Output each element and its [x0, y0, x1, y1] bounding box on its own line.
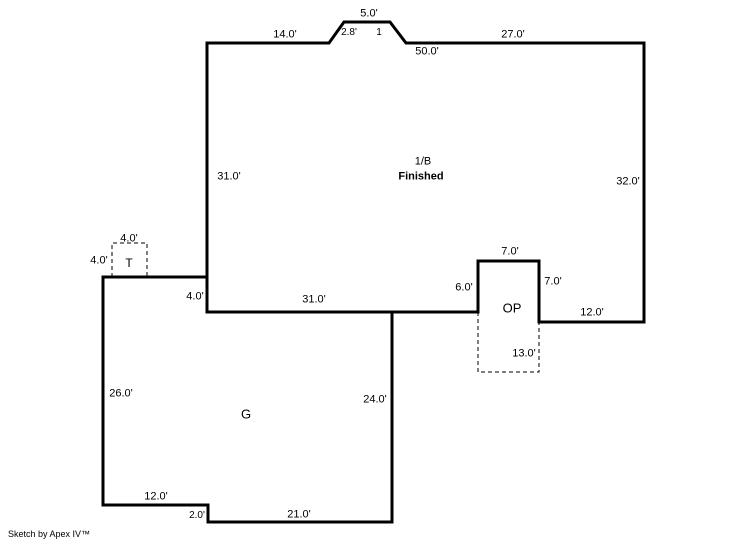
dim-main-bottom-right: 12.0'	[580, 308, 604, 319]
area-label-stoop: T	[125, 257, 132, 269]
area-label-main-floor-status: Finished	[398, 172, 443, 183]
area-label-porch: OP	[503, 302, 522, 315]
dim-garage-left: 26.0'	[109, 389, 133, 400]
dim-stoop-top: 4.0'	[120, 234, 137, 245]
dim-main-top-left: 14.0'	[273, 30, 297, 41]
dim-porch-top: 7.0'	[501, 247, 518, 258]
garage-outline	[103, 277, 392, 522]
dim-porch-depth: 13.0'	[512, 349, 536, 360]
floor-plan-drawing	[0, 0, 746, 547]
dim-main-left: 31.0'	[217, 172, 241, 183]
dim-main-left-jog: 4.0'	[186, 292, 203, 303]
porch-dashed-outline	[478, 312, 539, 372]
sketch-canvas: 14.0' 5.0' 2.8' 1 27.0' 50.0' 31.0' 32.0…	[0, 0, 746, 547]
dim-main-right: 32.0'	[616, 177, 640, 188]
dim-stoop-left: 4.0'	[90, 256, 107, 267]
dim-bay-right-slope: 1	[376, 28, 382, 38]
dim-porch-right: 7.0'	[544, 277, 561, 288]
dim-main-top-right: 27.0'	[501, 30, 525, 41]
dim-main-bottom-left: 31.0'	[302, 295, 326, 306]
dim-garage-step: 2.0'	[189, 511, 205, 521]
dim-porch-left: 6.0'	[455, 283, 472, 294]
area-label-garage: G	[241, 408, 251, 421]
area-label-main-floor: 1/B	[415, 157, 432, 168]
dim-bay-top: 5.0'	[360, 9, 377, 20]
sketch-credit: Sketch by Apex IV™	[8, 530, 90, 539]
dim-garage-bottom: 21.0'	[287, 510, 311, 521]
dim-garage-right: 24.0'	[363, 395, 387, 406]
dim-main-top-total: 50.0'	[415, 47, 439, 58]
dim-garage-bottom-left: 12.0'	[144, 492, 168, 503]
dim-bay-left-slope: 2.8'	[341, 28, 357, 38]
